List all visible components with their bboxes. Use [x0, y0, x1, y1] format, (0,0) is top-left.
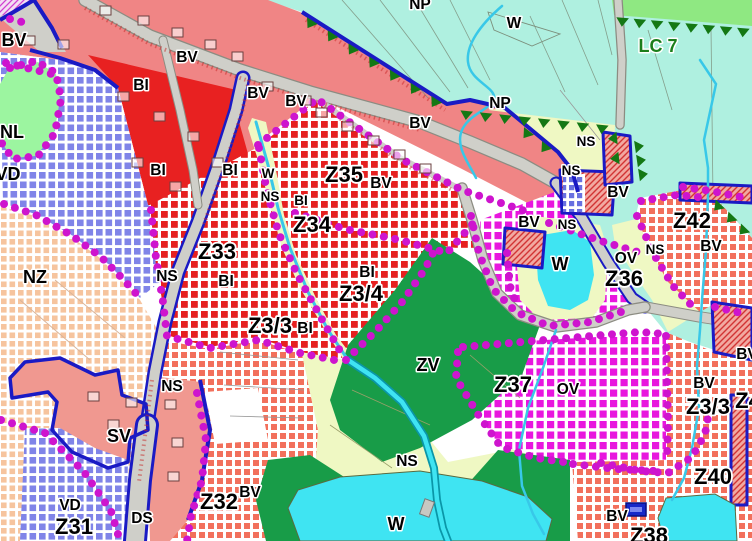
label-ns-sv: NS [161, 378, 183, 395]
label-z40: Z40 [694, 464, 732, 489]
building-footprint [172, 28, 183, 37]
label-z3-3-right: Z3/3 [686, 394, 730, 419]
label-bv-bottom: BV [606, 508, 628, 525]
label-bi-6: BI [297, 320, 313, 337]
label-ns-wedge2: NS [562, 163, 581, 178]
label-z36: Z36 [605, 266, 643, 291]
label-lc7: LC 7 [638, 36, 677, 56]
label-bv-5: BV [518, 214, 540, 231]
building-footprint [394, 150, 405, 159]
label-vd-top: VD [0, 164, 21, 184]
label-bv-right-edge: BV [736, 346, 752, 363]
building-footprint [342, 122, 353, 131]
label-z3-4: Z3/4 [339, 281, 384, 306]
building-footprint [132, 158, 143, 167]
label-z38-partial: Z38 [630, 523, 668, 541]
label-bv-1: BV [176, 49, 198, 66]
label-bi-5: BI [359, 264, 375, 281]
label-w-top: W [507, 15, 522, 32]
building-footprint [154, 112, 165, 121]
label-z3-3-left: Z3/3 [248, 313, 292, 338]
label-z33: Z33 [198, 239, 236, 264]
label-ns-bottom: NS [396, 453, 418, 470]
label-ds: DS [131, 510, 153, 527]
label-w-mid: W [262, 166, 275, 181]
building-footprint [170, 182, 181, 191]
label-bi-z33: BI [218, 273, 234, 290]
label-bv-z32: BV [239, 484, 261, 501]
building-footprint [420, 164, 431, 173]
label-bi-2: BI [150, 162, 166, 179]
building-footprint [118, 92, 129, 101]
label-z42: Z42 [673, 208, 711, 233]
building-footprint [172, 438, 183, 447]
label-np-top: NP [409, 0, 431, 13]
label-w-pond: W [552, 254, 569, 274]
label-bv-z42: BV [700, 238, 722, 255]
building-footprint [168, 472, 179, 481]
label-z31: Z31 [55, 514, 93, 539]
label-bi-4: BI [294, 193, 308, 208]
building-footprint [165, 400, 176, 409]
label-bv-topleft: BV [1, 30, 26, 50]
label-z32: Z32 [200, 489, 238, 514]
label-ov-2: OV [557, 381, 580, 398]
label-vd-bottom: VD [59, 497, 81, 514]
label-ns-mid: NS [261, 189, 280, 204]
building-footprint [232, 52, 243, 61]
label-sv: SV [107, 426, 131, 446]
label-bi-top: BI [133, 77, 149, 94]
label-bi-3: BI [222, 162, 238, 179]
label-ns-wedge1: NS [577, 134, 596, 149]
label-bv-6: BV [693, 375, 715, 392]
building-footprint [188, 132, 199, 141]
pond-bottom-right [658, 494, 737, 541]
label-bv-2: BV [247, 85, 269, 102]
label-w-bottom: W [388, 514, 405, 534]
label-zv: ZV [416, 355, 439, 375]
bv-area-symbol-inner [630, 507, 642, 512]
building-footprint [205, 40, 216, 49]
label-ns-3: NS [646, 242, 665, 257]
label-bv-3: BV [285, 93, 307, 110]
label-z37: Z37 [494, 372, 532, 397]
building-footprint [368, 136, 379, 145]
zoning-map[interactable]: NPWLC 7NPBVBVBIBVBVBVNLNSNSBIBIWNSBIZ35B… [0, 0, 752, 541]
label-ns-road: NS [156, 268, 178, 285]
label-nz: NZ [23, 267, 47, 287]
building-footprint [88, 392, 99, 401]
label-ns-4: NS [558, 217, 577, 232]
label-z35: Z35 [325, 162, 363, 187]
label-nl: NL [0, 122, 24, 142]
label-np-right: NP [489, 95, 511, 112]
building-footprint [138, 16, 149, 25]
label-ov-1: OV [615, 250, 638, 267]
symbols-layer [626, 503, 646, 516]
label-z41-partial: Z4 [735, 388, 752, 413]
building-footprint [100, 6, 111, 15]
label-bv-z35: BV [370, 175, 392, 192]
label-bv-p1: BV [607, 184, 629, 201]
building-footprint [316, 108, 327, 117]
label-z34: Z34 [293, 212, 332, 237]
building-footprint [126, 398, 137, 407]
label-bv-4: BV [409, 115, 431, 132]
building-footprint [58, 40, 69, 49]
